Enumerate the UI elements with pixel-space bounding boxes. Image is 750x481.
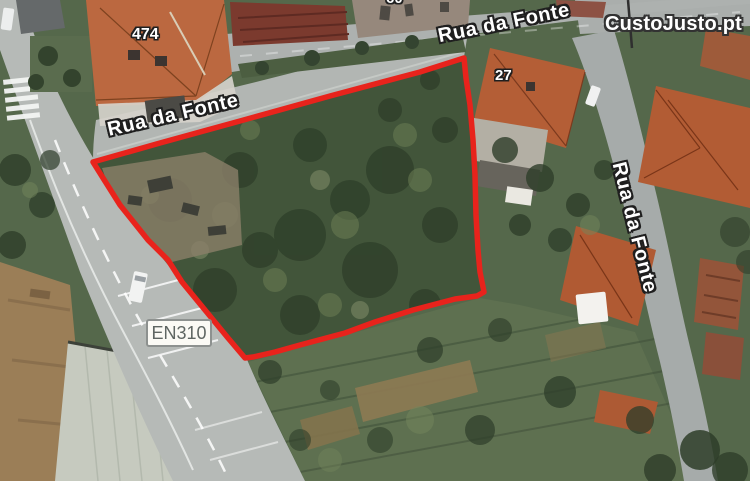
house-number-60: 60 [386, 0, 403, 6]
house-number-474: 474 [132, 27, 159, 43]
route-badge-en310: EN310 [146, 319, 212, 347]
custojusto-watermark: CustoJusto.pt [605, 13, 742, 36]
house-474 [86, 0, 232, 106]
satellite-map[interactable]: Rua da Fonte Rua da Fonte Rua da Fonte 4… [0, 0, 750, 481]
house-number-27: 27 [495, 68, 512, 83]
